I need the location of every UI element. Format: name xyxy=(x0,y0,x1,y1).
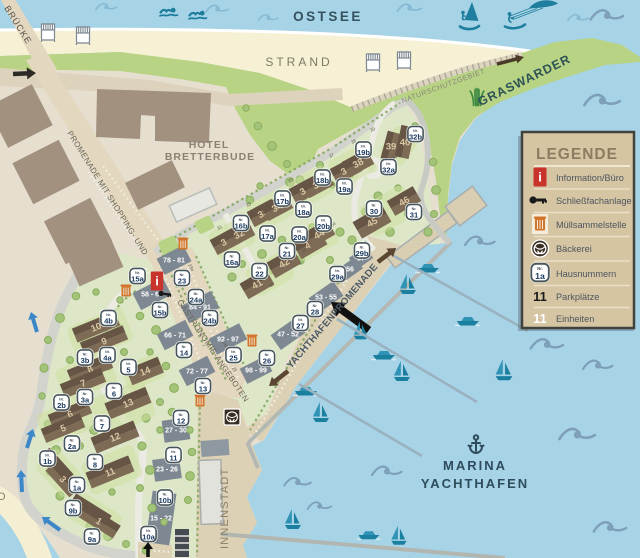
svg-text:27 - 30: 27 - 30 xyxy=(165,428,187,435)
svg-text:56: 56 xyxy=(346,267,354,274)
svg-text:4a: 4a xyxy=(103,354,112,363)
svg-text:19a: 19a xyxy=(338,185,351,194)
svg-text:17b: 17b xyxy=(276,197,289,206)
svg-text:Parkplätze: Parkplätze xyxy=(556,292,599,302)
svg-text:19b: 19b xyxy=(357,148,370,157)
svg-text:78 - 81: 78 - 81 xyxy=(163,258,185,265)
svg-text:O: O xyxy=(0,491,6,503)
svg-text:1b: 1b xyxy=(43,457,52,466)
svg-text:25: 25 xyxy=(229,354,238,363)
svg-text:Bäckerei: Bäckerei xyxy=(556,244,592,254)
svg-text:20b: 20b xyxy=(317,222,330,231)
svg-text:Müllsammelstelle: Müllsammelstelle xyxy=(556,220,626,230)
svg-text:4b: 4b xyxy=(104,317,113,326)
svg-text:92 - 97: 92 - 97 xyxy=(217,337,239,344)
svg-text:18b: 18b xyxy=(316,176,329,185)
svg-text:47 - 52: 47 - 52 xyxy=(277,332,299,339)
svg-text:20a: 20a xyxy=(293,233,306,242)
svg-text:Schließfachanlage: Schließfachanlage xyxy=(556,196,632,206)
svg-text:10a: 10a xyxy=(142,533,155,542)
svg-text:31: 31 xyxy=(410,211,419,220)
svg-text:LEGENDE: LEGENDE xyxy=(536,146,618,163)
svg-text:HOTEL: HOTEL xyxy=(189,139,230,151)
svg-text:7: 7 xyxy=(100,422,104,431)
svg-text:17a: 17a xyxy=(261,232,274,241)
svg-text:3a: 3a xyxy=(81,396,90,405)
svg-text:YACHTHAFEN: YACHTHAFEN xyxy=(421,476,529,491)
svg-text:2b: 2b xyxy=(57,401,66,410)
svg-text:i: i xyxy=(538,170,542,185)
svg-text:i: i xyxy=(155,274,159,289)
svg-text:29a: 29a xyxy=(331,273,344,282)
svg-text:13: 13 xyxy=(199,385,207,394)
svg-text:66 - 71: 66 - 71 xyxy=(164,333,186,340)
svg-text:8: 8 xyxy=(93,461,97,470)
svg-text:32a: 32a xyxy=(382,166,395,175)
svg-text:24a: 24a xyxy=(190,296,203,305)
svg-text:14: 14 xyxy=(180,349,189,358)
svg-text:6: 6 xyxy=(112,390,116,399)
svg-text:12: 12 xyxy=(177,417,185,426)
svg-text:INNENSTADT: INNENSTADT xyxy=(219,468,231,549)
svg-text:9b: 9b xyxy=(69,507,78,516)
svg-text:11: 11 xyxy=(169,454,178,463)
svg-text:27: 27 xyxy=(296,322,304,331)
svg-text:9a: 9a xyxy=(88,535,97,544)
svg-text:23 - 26: 23 - 26 xyxy=(156,467,178,474)
svg-text:24b: 24b xyxy=(203,317,216,326)
svg-text:MARINA: MARINA xyxy=(443,458,507,473)
svg-text:Hausnummern: Hausnummern xyxy=(556,269,616,279)
svg-text:98 - 99: 98 - 99 xyxy=(245,368,267,375)
svg-text:1a: 1a xyxy=(535,271,545,281)
svg-text:32b: 32b xyxy=(409,133,422,142)
svg-text:3b: 3b xyxy=(81,356,90,365)
svg-text:16b: 16b xyxy=(234,222,247,231)
svg-text:72 - 77: 72 - 77 xyxy=(186,369,208,376)
svg-text:23: 23 xyxy=(178,277,186,286)
svg-text:OSTSEE: OSTSEE xyxy=(293,9,363,24)
svg-text:29b: 29b xyxy=(355,249,368,258)
svg-text:30: 30 xyxy=(370,207,378,216)
svg-text:28: 28 xyxy=(311,308,319,317)
svg-text:15b: 15b xyxy=(153,309,166,318)
svg-text:16a: 16a xyxy=(226,258,239,267)
svg-text:10b: 10b xyxy=(158,496,171,505)
svg-text:26: 26 xyxy=(263,357,271,366)
svg-text:39: 39 xyxy=(386,141,397,152)
svg-text:2a: 2a xyxy=(68,442,77,451)
svg-text:Einheiten: Einheiten xyxy=(556,314,594,324)
svg-text:18a: 18a xyxy=(297,208,310,217)
svg-text:BRETTERBUDE: BRETTERBUDE xyxy=(165,151,255,163)
svg-text:22: 22 xyxy=(255,270,263,279)
svg-text:11: 11 xyxy=(533,311,547,326)
svg-text:1a: 1a xyxy=(73,484,82,493)
svg-text:Information/Büro: Information/Büro xyxy=(556,173,624,183)
svg-text:15a: 15a xyxy=(131,275,144,284)
svg-text:11: 11 xyxy=(533,289,547,304)
svg-text:STRAND: STRAND xyxy=(265,55,332,69)
svg-text:21: 21 xyxy=(283,250,292,259)
